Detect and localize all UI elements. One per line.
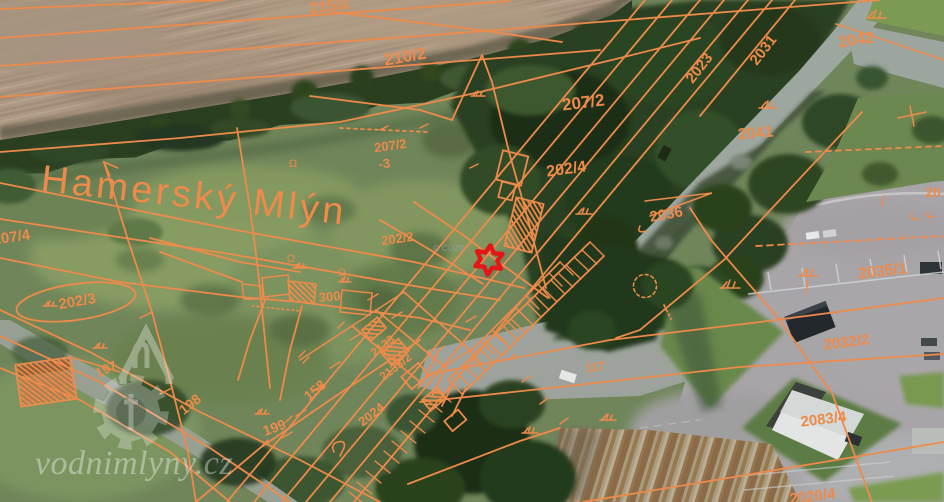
svg-text:2041: 2041 [737,123,774,143]
svg-text:Ω: Ω [287,253,295,265]
svg-text:© ČÚZK: © ČÚZK [433,243,465,253]
svg-text:Ω: Ω [338,267,346,279]
svg-text:300: 300 [318,288,341,305]
svg-text:-3: -3 [378,155,392,171]
svg-text:20: 20 [925,184,941,200]
svg-text:Ω: Ω [289,158,297,170]
svg-text:vodnimlyny.cz: vodnimlyny.cz [35,445,233,482]
